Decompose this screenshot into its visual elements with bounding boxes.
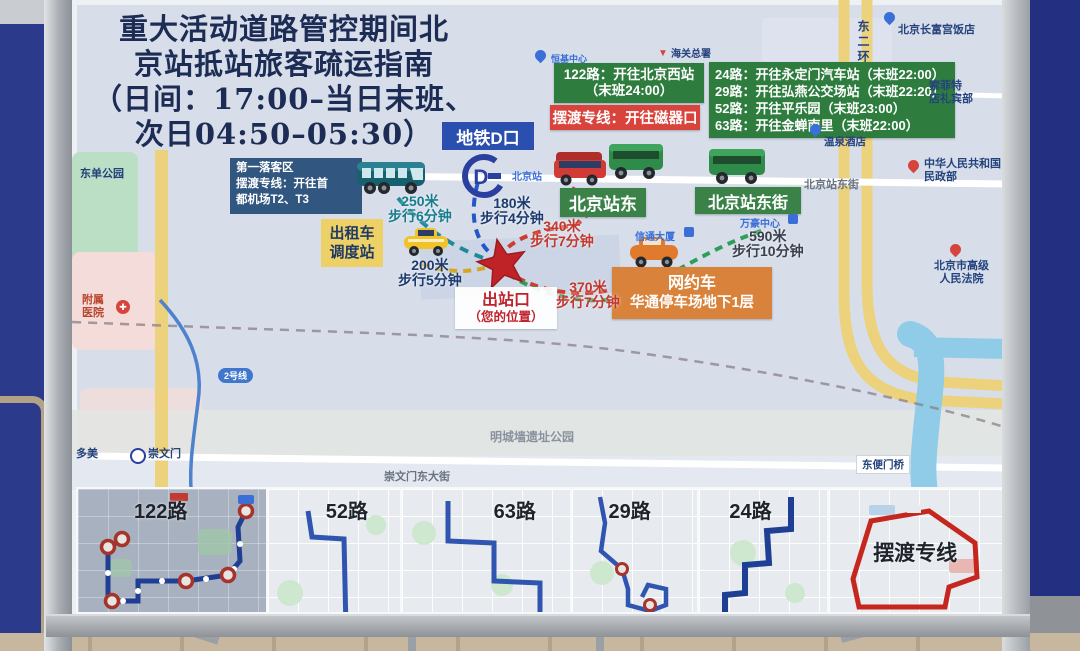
- red-shuttle-icon: [552, 150, 608, 188]
- metro-station-roundel-icon: [130, 448, 146, 464]
- minimap-29-label: 29路: [608, 495, 650, 524]
- route-122-line2: （末班24:00）: [585, 83, 674, 99]
- walk-distance-taxi: 200米 步行5分钟: [398, 258, 462, 288]
- board-title: 重大活动道路管控期间北 京站抵站旅客疏运指南 （日间：17:00–当日末班、 次…: [86, 12, 482, 152]
- poi-court-line1: 北京市高级: [934, 260, 989, 273]
- title-line-4: 次日04:50–05:30）: [86, 117, 482, 152]
- dropoff-zone-notice: 第一落客区 摆渡专线：开往首 都机场T2、T3: [230, 158, 362, 214]
- walk-distance-hailing: 370米 步行7分钟: [556, 280, 620, 310]
- walk-distance-coach: 250米 步行6分钟: [388, 194, 452, 224]
- minimap-24: 24路: [699, 489, 827, 612]
- title-line-1: 重大活动道路管控期间北: [86, 12, 482, 47]
- poi-dong-er-huan: 东二环: [856, 20, 869, 65]
- poi-sofitel-line1: 索菲特: [929, 80, 973, 93]
- metro-line2-badge: 2号线: [218, 368, 253, 383]
- ferry-line-text: 摆渡专线：开往磁器口: [553, 107, 698, 128]
- minimap-52: 52路: [268, 489, 400, 612]
- frame-left-post: [44, 0, 72, 651]
- adjacent-blue-sign: [0, 24, 44, 636]
- dropoff-line3: 都机场T2、T3: [236, 192, 356, 208]
- minimap-24-label: 24路: [729, 495, 771, 524]
- station-east-text: 北京站东: [569, 190, 637, 215]
- route-63-line-icon: [402, 489, 571, 612]
- poi-dongbianmen: 东便门桥: [856, 455, 910, 474]
- poi-hospital: 附属 医院: [82, 294, 104, 320]
- poi-hospital-line2: 医院: [82, 307, 104, 320]
- poi-sofitel-line2: 店礼宾部: [929, 93, 973, 106]
- green-bus-icon: [607, 140, 665, 182]
- dropoff-line2: 摆渡专线：开往首: [236, 176, 356, 192]
- taxi-stand-line1: 出租车: [329, 224, 374, 243]
- ferry-line-notice: 摆渡专线：开往磁器口: [550, 105, 700, 130]
- poi-xintong: 信通大厦: [635, 228, 675, 243]
- taxi-stand-label: 出租车 调度站: [321, 219, 383, 267]
- route-122-line1: 122路：开往北京西站: [564, 67, 695, 83]
- minimap-52-label: 52路: [326, 495, 368, 524]
- poi-changfugong: 北京长富宫饭店: [898, 24, 975, 37]
- station-east-street-text: 北京站东街: [708, 189, 788, 213]
- route-minimap-strip: 122路 52路 63路: [76, 487, 1004, 614]
- route-24-text: 24路：开往永定门汽车站（末班22:00）: [715, 66, 949, 83]
- airport-coach-icon: [355, 158, 429, 196]
- building-marker-icon: [788, 214, 798, 224]
- poi-mingcheng-park: 明城墙遗址公园: [490, 428, 574, 445]
- coach-distance: 250米: [401, 194, 438, 209]
- exit-line2: （您的位置）: [468, 310, 543, 325]
- east-street-walk-time: 步行10分钟: [732, 244, 804, 259]
- road-label-chongwen-street: 崇文门东大街: [384, 468, 450, 484]
- poi-minzheng-line2: 民政部: [924, 171, 1001, 184]
- minimap-29: 29路: [572, 489, 697, 612]
- walk-distance-east-street: 590米 步行10分钟: [732, 229, 804, 259]
- guide-board: 重大活动道路管控期间北 京站抵站旅客疏运指南 （日间：17:00–当日末班、 次…: [72, 0, 1008, 622]
- poi-customs: 海关总署: [671, 48, 711, 61]
- hailing-distance: 370米: [569, 280, 606, 295]
- metro-distance: 180米: [493, 196, 530, 211]
- title-line-3: （日间：17:00–当日末班、: [86, 82, 482, 117]
- minimap-122: 122路: [78, 489, 266, 612]
- route-52-text: 52路：开往平乐园（末班23:00）: [715, 100, 949, 117]
- frame-bottom-bar: [46, 614, 1030, 637]
- metro-exit-d-label: 地铁D口: [442, 122, 534, 150]
- customs-marker-icon: ▼: [658, 48, 668, 59]
- taxi-walk-time: 步行5分钟: [398, 273, 462, 288]
- east-walk-time: 步行7分钟: [530, 234, 594, 249]
- exit-line1: 出站口: [482, 291, 530, 310]
- sign-photo: 重大活动道路管控期间北 京站抵站旅客疏运指南 （日间：17:00–当日末班、 次…: [0, 0, 1080, 651]
- beijing-station-label: 北京站: [512, 168, 542, 183]
- taxi-stand-line2: 调度站: [329, 243, 374, 262]
- background-blue-panel: [1028, 0, 1080, 651]
- wall: [0, 0, 46, 26]
- station-east-stop-label: 北京站东: [560, 188, 646, 217]
- you-are-here-star-icon: [471, 232, 533, 294]
- hailing-walk-time: 步行7分钟: [556, 295, 620, 310]
- road-label-east-street: 北京站东街: [804, 176, 859, 192]
- poi-sofitel: 索菲特 店礼宾部: [929, 80, 973, 106]
- poi-hospital-line1: 附属: [82, 294, 104, 307]
- minimap-122-label: 122路: [134, 495, 187, 524]
- ride-hailing-line2: 华通停车场地下1层: [630, 294, 754, 312]
- coach-walk-time: 步行6分钟: [388, 209, 452, 224]
- ride-hailing-notice: 网约车 华通停车场地下1层: [612, 267, 772, 319]
- right-routes-notice: 24路：开往永定门汽车站（末班22:00） 29路：开往弘燕公交场站（末班22:…: [709, 62, 955, 138]
- metro-exit-d-text: 地铁D口: [456, 124, 519, 149]
- dropoff-line1: 第一落客区: [236, 160, 356, 176]
- svg-text:D: D: [473, 166, 488, 189]
- minimap-63-label: 63路: [494, 495, 536, 524]
- poi-wanhao: 万豪中心: [740, 215, 780, 230]
- taxi-icon: [402, 226, 450, 258]
- frame-right-post: [1002, 0, 1030, 651]
- route-122-notice: 122路：开往北京西站 （末班24:00）: [554, 63, 704, 103]
- adjacent-sign-frame: [0, 396, 44, 636]
- route-63-text: 63路：开往金蝉南里（末班22:00）: [715, 117, 949, 134]
- title-line-2: 京站抵站旅客疏运指南: [86, 47, 482, 82]
- station-east-street-stop-label: 北京站东街: [695, 187, 801, 214]
- building-marker-icon: [684, 227, 694, 237]
- east-street-distance: 590米: [749, 229, 786, 244]
- poi-minzheng-line1: 中华人民共和国: [924, 158, 1001, 171]
- green-bus-icon: [707, 145, 767, 187]
- minimap-ferry-label: 摆渡专线: [873, 537, 957, 567]
- minimap-63: 63路: [402, 489, 571, 612]
- poi-hengji: 恒基中心: [551, 52, 587, 65]
- poi-wenquan: 温泉酒店: [824, 136, 866, 149]
- poi-court-line2: 人民法院: [934, 273, 989, 286]
- hospital-cross-icon: ✚: [116, 300, 130, 314]
- taxi-distance: 200米: [411, 258, 448, 273]
- ride-hailing-line1: 网约车: [668, 274, 716, 294]
- poi-dongdan-park: 东单公园: [80, 168, 124, 181]
- poi-duomei: 多美: [76, 448, 98, 461]
- poi-chongwenmen: 崇文门: [148, 448, 181, 461]
- east-distance: 340米: [543, 219, 580, 234]
- poi-court: 北京市高级 人民法院: [934, 260, 989, 286]
- exit-location-label: 出站口 （您的位置）: [455, 287, 557, 329]
- walk-distance-east: 340米 步行7分钟: [530, 219, 594, 249]
- route-29-text: 29路：开往弘燕公交场站（末班22:20）: [715, 83, 949, 100]
- poi-minzheng: 中华人民共和国 民政部: [924, 158, 1001, 184]
- minimap-ferry: 摆渡专线: [829, 489, 1002, 612]
